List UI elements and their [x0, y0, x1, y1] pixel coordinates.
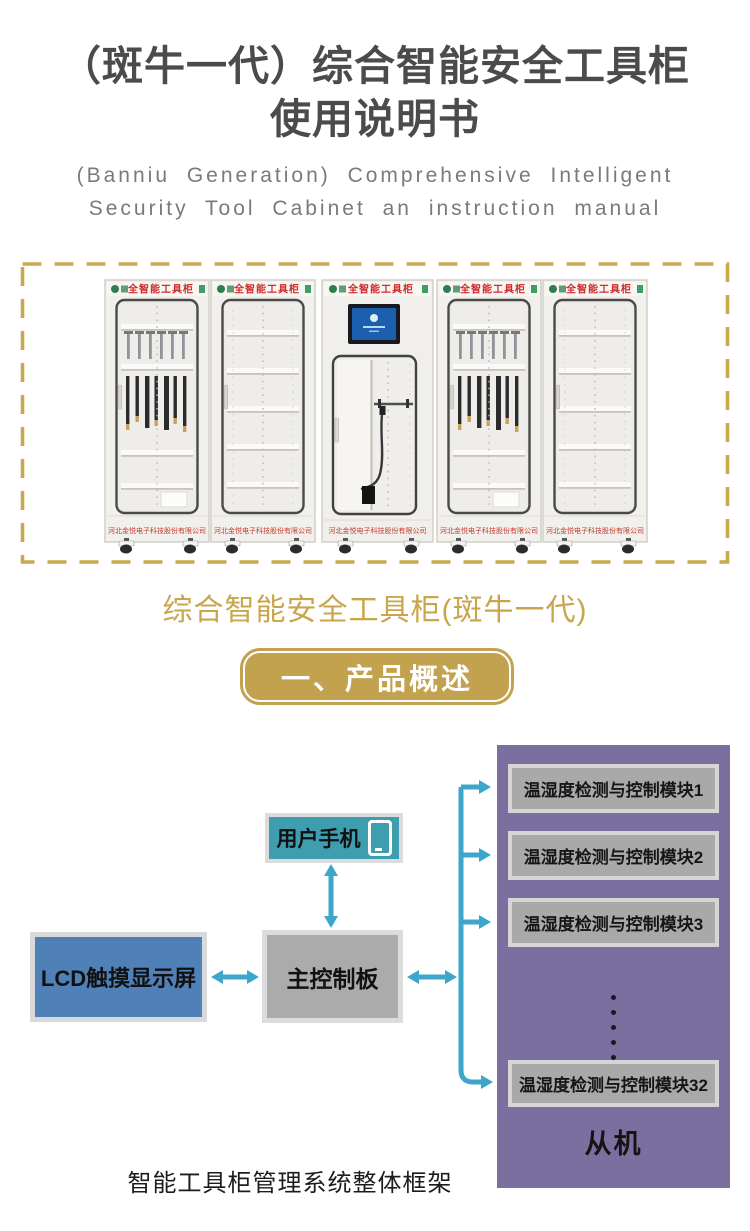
slave-label: 从机: [497, 1122, 730, 1161]
module-box-2: 温湿度检测与控制模块2: [508, 831, 719, 880]
section-banner-label: 一、产品概述: [281, 656, 473, 698]
manual-page: （斑牛一代）综合智能安全工具柜 使用说明书 (Banniu Generation…: [0, 0, 750, 1231]
phone-node-label: 用户手机: [277, 823, 361, 853]
lcd-node: LCD触摸显示屏: [30, 932, 207, 1022]
phone-node: 用户手机: [265, 813, 403, 863]
page-subtitle-line1: (Banniu Generation) Comprehensive Intell…: [0, 159, 750, 192]
slave-panel: 温湿度检测与控制模块1 温湿度检测与控制模块2 温湿度检测与控制模块3 温湿度检…: [497, 745, 730, 1188]
module-box-3: 温湿度检测与控制模块3: [508, 898, 719, 947]
phone-icon: [368, 820, 392, 856]
page-title: （斑牛一代）综合智能安全工具柜 使用说明书: [0, 40, 750, 146]
module-box-1-label: 温湿度检测与控制模块1: [512, 768, 715, 809]
module-box-32-label: 温湿度检测与控制模块32: [512, 1064, 715, 1103]
cabinet-illustration: [105, 280, 647, 554]
lcd-node-label: LCD触摸显示屏: [41, 961, 196, 993]
module-box-32: 温湿度检测与控制模块32: [508, 1060, 719, 1107]
page-subtitle: (Banniu Generation) Comprehensive Intell…: [0, 159, 750, 225]
diagram-caption: 智能工具柜管理系统整体框架: [103, 1163, 477, 1198]
module-box-2-label: 温湿度检测与控制模块2: [512, 835, 715, 876]
figure-caption: 综合智能安全工具柜(斑牛一代): [0, 585, 750, 629]
page-title-line1: （斑牛一代）综合智能安全工具柜: [0, 40, 750, 93]
product-figure: 全智能工具柜 河北金悦电子科技股份有限公司: [0, 258, 750, 568]
main-board-label: 主控制板: [287, 960, 379, 994]
page-subtitle-line2: Security Tool Cabinet an instruction man…: [0, 192, 750, 225]
main-board-node: 主控制板: [262, 930, 403, 1023]
module-box-1: 温湿度检测与控制模块1: [508, 764, 719, 813]
module-box-3-label: 温湿度检测与控制模块3: [512, 902, 715, 943]
page-title-line2: 使用说明书: [0, 93, 750, 146]
section-banner: 一、产品概述: [243, 651, 511, 702]
